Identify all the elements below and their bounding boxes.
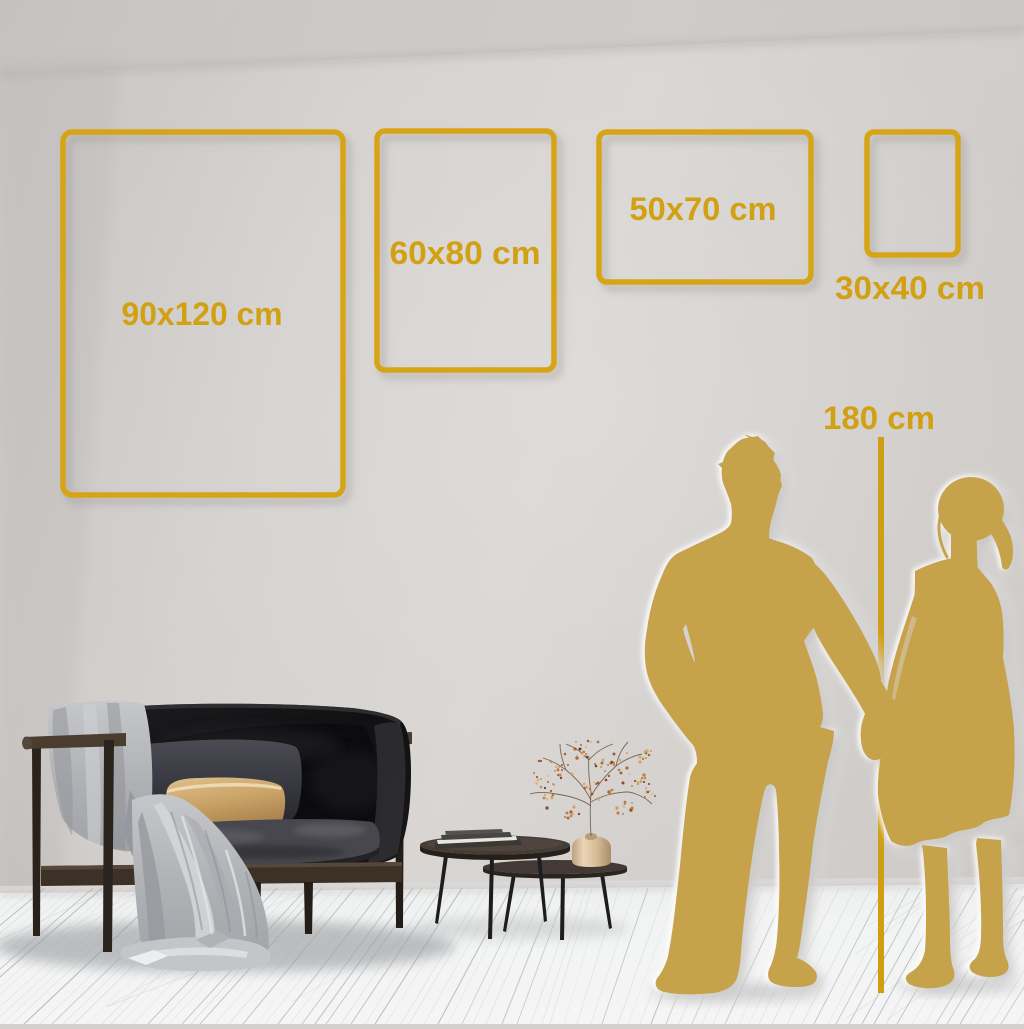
- svg-text:180 cm: 180 cm: [823, 400, 935, 436]
- svg-text:50x70 cm: 50x70 cm: [630, 191, 777, 227]
- svg-text:60x80 cm: 60x80 cm: [390, 235, 541, 271]
- svg-text:90x120 cm: 90x120 cm: [122, 296, 283, 332]
- svg-text:30x40 cm: 30x40 cm: [835, 270, 985, 306]
